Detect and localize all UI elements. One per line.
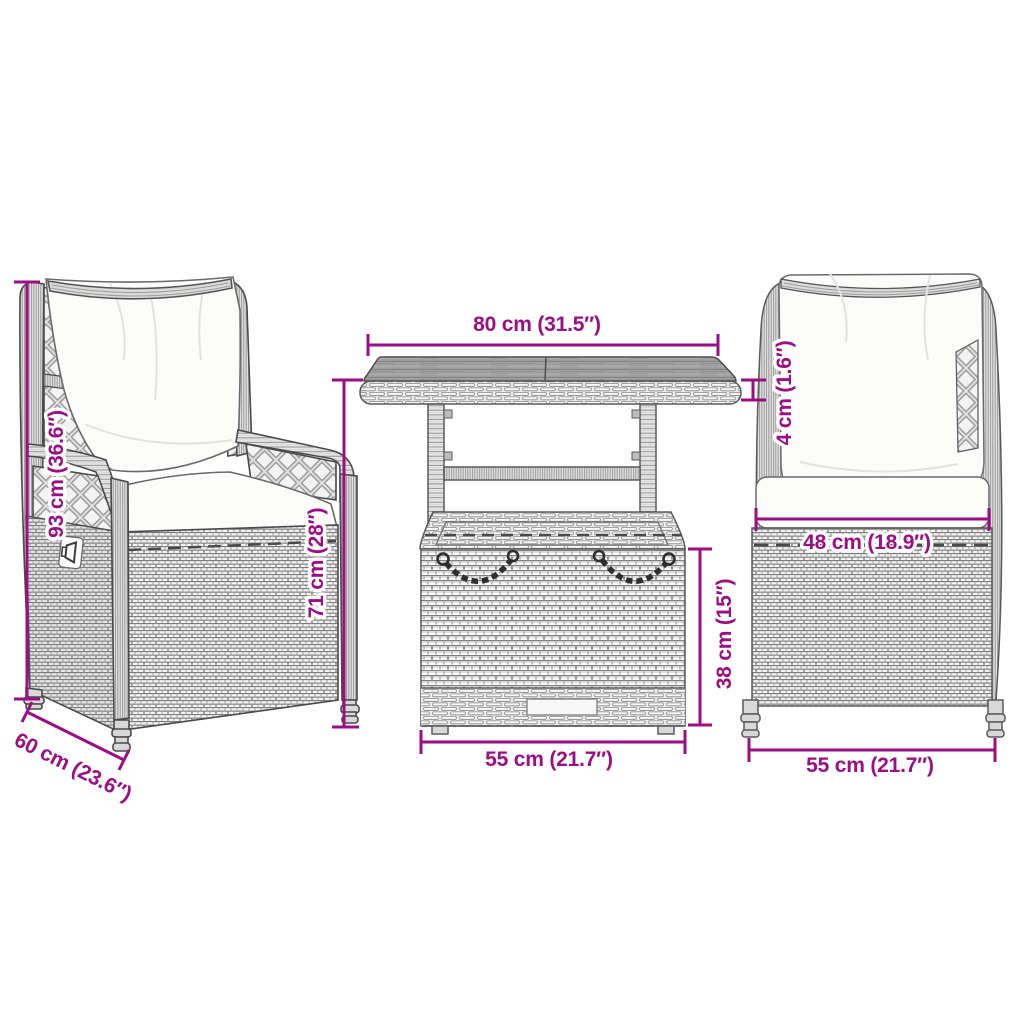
svg-text:4 cm (1.6″): 4 cm (1.6″): [773, 341, 796, 446]
svg-text:93 cm (36.6″): 93 cm (36.6″): [45, 410, 68, 538]
svg-text:48 cm (18.9″): 48 cm (18.9″): [803, 531, 931, 554]
svg-text:55 cm (21.7″): 55 cm (21.7″): [485, 748, 613, 771]
svg-text:38 cm (15″): 38 cm (15″): [713, 579, 736, 690]
svg-text:55 cm (21.7″): 55 cm (21.7″): [806, 754, 934, 777]
svg-text:71 cm (28″): 71 cm (28″): [305, 508, 328, 619]
svg-text:80 cm (31.5″): 80 cm (31.5″): [473, 313, 601, 336]
